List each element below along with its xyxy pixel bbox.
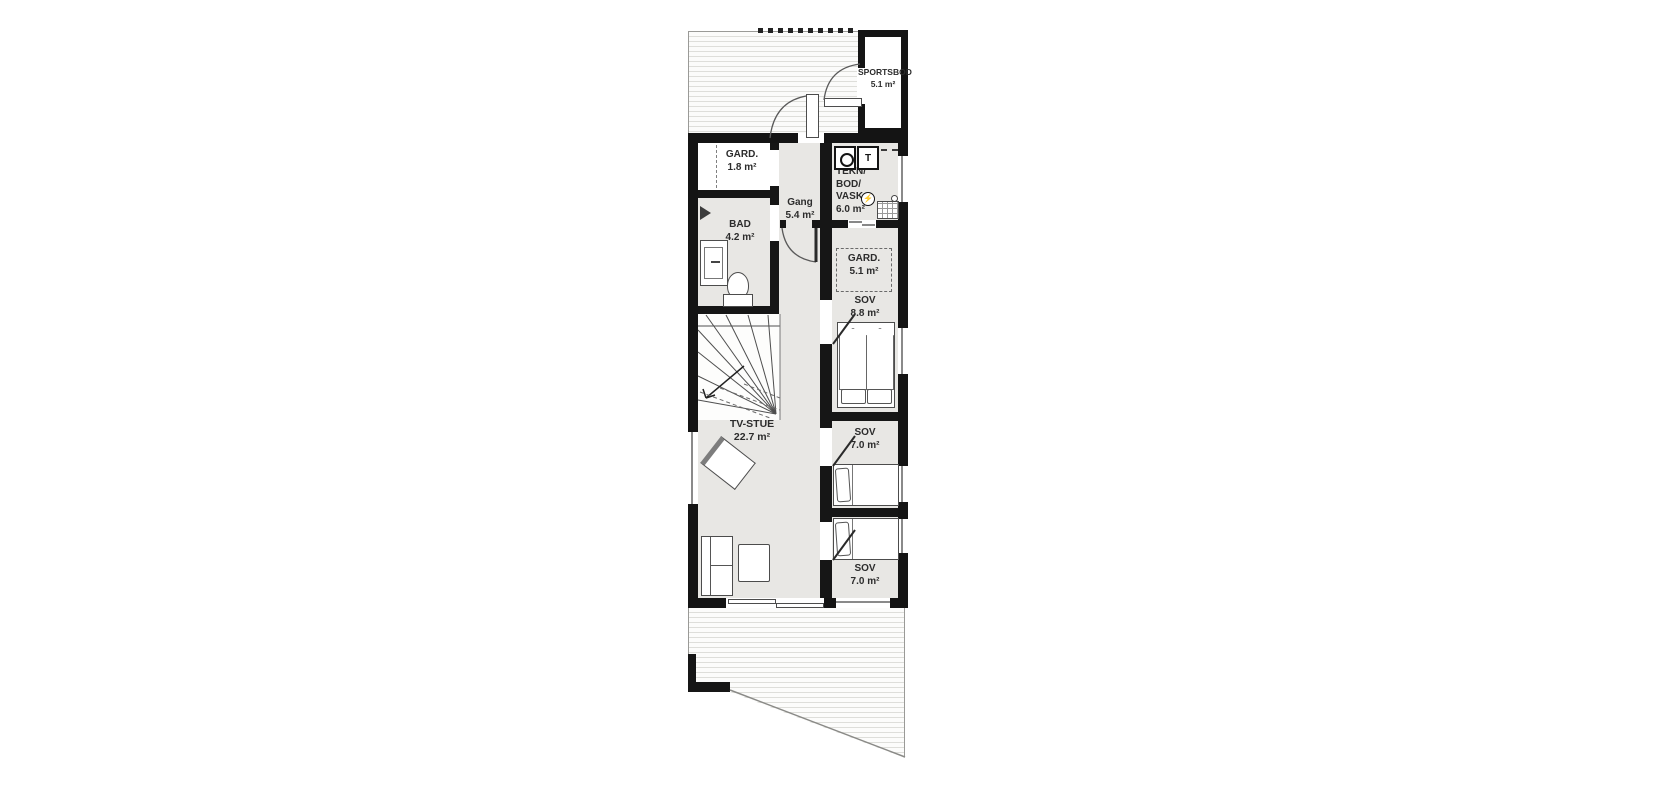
stair-arrow-icon <box>703 366 744 398</box>
sov-lower-door-leaf <box>833 530 855 560</box>
sov-main-door-leaf <box>833 314 855 344</box>
floor-plan: SPORTSBOD 5.1 m² GARD. 1.8 m² BAD 4.2 m² <box>0 0 1670 800</box>
entrance-door-arc <box>770 96 806 138</box>
terrace-diagonal-edge <box>730 690 905 757</box>
sportsbod-door-arc <box>824 64 860 100</box>
staircase-icon <box>698 314 780 420</box>
gang-door-arc <box>782 228 816 262</box>
plan-linework <box>0 0 1670 800</box>
sov-upper-door-leaf <box>833 436 855 466</box>
